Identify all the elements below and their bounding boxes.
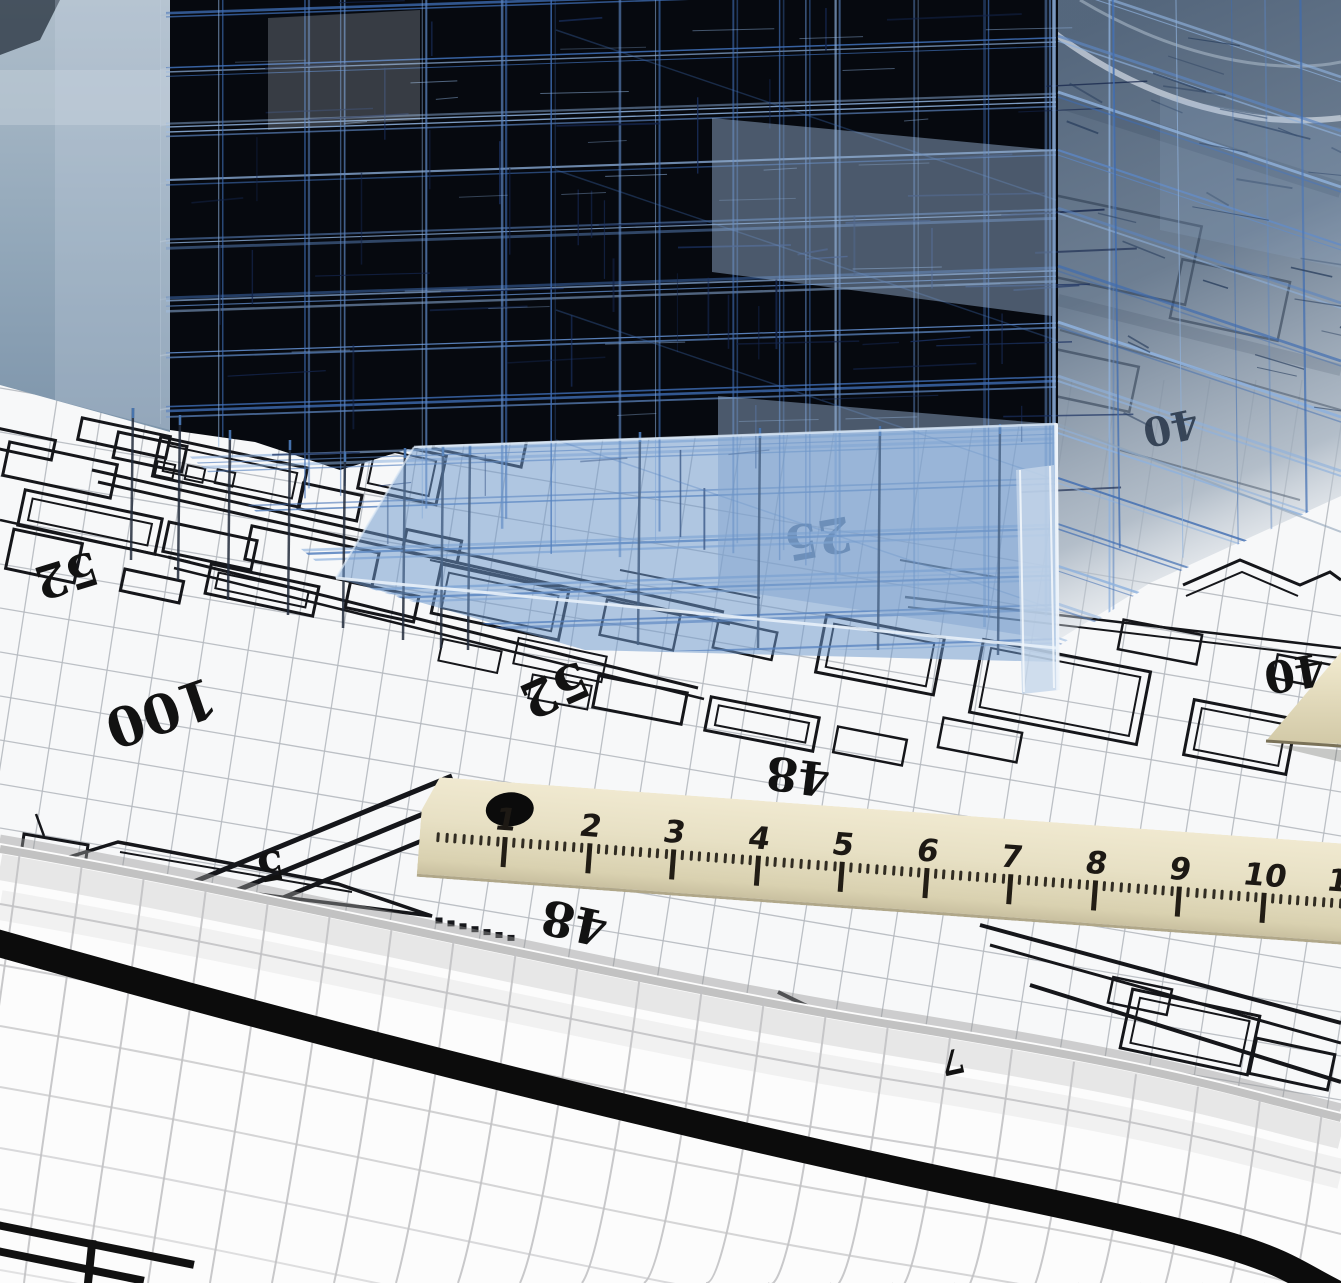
ruler-minor-tick	[1195, 888, 1199, 898]
ruler-minor-tick	[622, 846, 626, 856]
ruler-major-tick	[1006, 874, 1013, 904]
ruler-minor-tick	[1060, 878, 1064, 888]
ruler-major-tick	[922, 868, 929, 898]
ruler-minor-tick	[1220, 890, 1224, 900]
ruler-minor-tick	[706, 852, 710, 862]
ruler-minor-tick	[445, 833, 449, 843]
ruler-minor-tick	[521, 838, 525, 848]
ruler-minor-tick	[892, 866, 896, 876]
ruler-minor-tick	[875, 864, 879, 874]
ruler-minor-tick	[656, 848, 660, 858]
ruler-minor-tick	[740, 854, 744, 864]
ruler-number: 8	[1062, 843, 1129, 883]
architectural-render-scene: 2525	[0, 0, 1341, 1283]
ruler-number: 4	[725, 819, 792, 859]
ruler-minor-tick	[630, 846, 634, 856]
ruler-major-tick	[585, 843, 592, 873]
ruler-minor-tick	[807, 859, 811, 869]
ruler-major-tick	[669, 849, 676, 879]
ruler-minor-tick	[1288, 895, 1292, 905]
ruler-number: 1	[473, 800, 540, 840]
ruler-minor-tick	[1271, 893, 1275, 903]
ruler-minor-tick	[1144, 884, 1148, 894]
ruler-minor-tick	[917, 867, 921, 877]
ruler-minor-tick	[1018, 875, 1022, 885]
ruler-number: 2	[557, 806, 624, 846]
dimension-label: 48	[763, 745, 833, 806]
ruler-minor-tick	[512, 838, 516, 848]
ruler-minor-tick	[1128, 883, 1132, 893]
ruler-minor-tick	[1254, 892, 1258, 902]
ruler-major-tick	[838, 862, 845, 892]
ruler-minor-tick	[858, 863, 862, 873]
ruler-minor-tick	[1279, 894, 1283, 904]
ruler-minor-tick	[799, 859, 803, 869]
ruler-minor-tick	[774, 857, 778, 867]
ruler-minor-tick	[833, 861, 837, 871]
ruler-minor-tick	[681, 850, 685, 860]
ruler-minor-tick	[1229, 890, 1233, 900]
ruler-minor-tick	[723, 853, 727, 863]
ruler-minor-tick	[1119, 882, 1123, 892]
ruler-minor-tick	[968, 871, 972, 881]
ruler-minor-tick	[1161, 885, 1165, 895]
ruler-minor-tick	[1187, 887, 1191, 897]
ruler-minor-tick	[698, 851, 702, 861]
ruler-major-tick	[1259, 893, 1266, 923]
ruler-minor-tick	[639, 847, 643, 857]
ruler-minor-tick	[748, 855, 752, 865]
ruler-minor-tick	[1136, 883, 1140, 893]
ruler-minor-tick	[453, 833, 457, 843]
ruler-minor-tick	[909, 867, 913, 877]
ruler-minor-tick	[487, 836, 491, 846]
ruler-minor-tick	[1313, 896, 1317, 906]
ruler-minor-tick	[993, 873, 997, 883]
ruler-minor-tick	[647, 848, 651, 858]
ruler-minor-tick	[934, 869, 938, 879]
scene-illustration: 2525	[0, 0, 1341, 1283]
ruler-minor-tick	[605, 845, 609, 855]
ruler-minor-tick	[538, 840, 542, 850]
ruler-number: 7	[978, 837, 1045, 877]
ruler-minor-tick	[546, 840, 550, 850]
ruler-minor-tick	[1043, 877, 1047, 887]
ruler-minor-tick	[1052, 877, 1056, 887]
ruler-minor-tick	[470, 835, 474, 845]
ruler-major-tick	[501, 837, 508, 867]
ruler-number: 10	[1231, 856, 1298, 896]
ruler-minor-tick	[580, 843, 584, 853]
ruler-minor-tick	[791, 858, 795, 868]
ruler-minor-tick	[1035, 876, 1039, 886]
ruler-minor-tick	[597, 844, 601, 854]
ruler-minor-tick	[715, 853, 719, 863]
ruler-minor-tick	[732, 854, 736, 864]
ruler-minor-tick	[1237, 891, 1241, 901]
ruler-major-tick	[1090, 880, 1097, 910]
ruler-minor-tick	[1170, 886, 1174, 896]
ruler-number: 6	[894, 831, 961, 871]
ruler-minor-tick	[765, 856, 769, 866]
ruler-minor-tick	[563, 841, 567, 851]
dimension-label: 40	[1260, 642, 1329, 703]
ruler-minor-tick	[951, 870, 955, 880]
ruler-minor-tick	[1077, 879, 1081, 889]
ruler-minor-tick	[1203, 888, 1207, 898]
ruler-minor-tick	[437, 832, 441, 842]
ruler-minor-tick	[664, 849, 668, 859]
ruler-minor-tick	[816, 860, 820, 870]
ruler-minor-tick	[984, 872, 988, 882]
ruler-minor-tick	[1001, 874, 1005, 884]
ruler-minor-tick	[1026, 875, 1030, 885]
ruler-minor-tick	[1305, 896, 1309, 906]
ruler-minor-tick	[479, 835, 483, 845]
ruler-minor-tick	[976, 872, 980, 882]
ruler-minor-tick	[529, 839, 533, 849]
ruler-minor-tick	[1153, 885, 1157, 895]
ruler-major-tick	[753, 855, 760, 885]
ruler-minor-tick	[1330, 898, 1334, 908]
ruler-minor-tick	[900, 866, 904, 876]
ruler-minor-tick	[1085, 880, 1089, 890]
ruler-minor-tick	[782, 857, 786, 867]
ruler-number: 9	[1147, 850, 1214, 890]
ruler-minor-tick	[1296, 895, 1300, 905]
ruler-major-tick	[1175, 886, 1182, 916]
ruler-minor-tick	[1246, 892, 1250, 902]
ruler-minor-tick	[1102, 881, 1106, 891]
ruler-number: 5	[810, 825, 877, 865]
ruler-minor-tick	[883, 865, 887, 875]
ruler-minor-tick	[866, 864, 870, 874]
ruler-minor-tick	[824, 861, 828, 871]
ruler-minor-tick	[1321, 897, 1325, 907]
ruler-minor-tick	[462, 834, 466, 844]
ruler-minor-tick	[959, 870, 963, 880]
ruler-number: 11	[1315, 862, 1341, 902]
ruler-minor-tick	[555, 841, 559, 851]
ruler-minor-tick	[496, 836, 500, 846]
ruler-minor-tick	[614, 845, 618, 855]
ruler-minor-tick	[942, 869, 946, 879]
ruler-number: 3	[641, 813, 708, 853]
ruler-minor-tick	[1111, 882, 1115, 892]
ruler-minor-tick	[689, 851, 693, 861]
ruler-minor-tick	[850, 862, 854, 872]
ruler-minor-tick	[1212, 889, 1216, 899]
ruler-minor-tick	[1069, 879, 1073, 889]
ruler-minor-tick	[571, 842, 575, 852]
